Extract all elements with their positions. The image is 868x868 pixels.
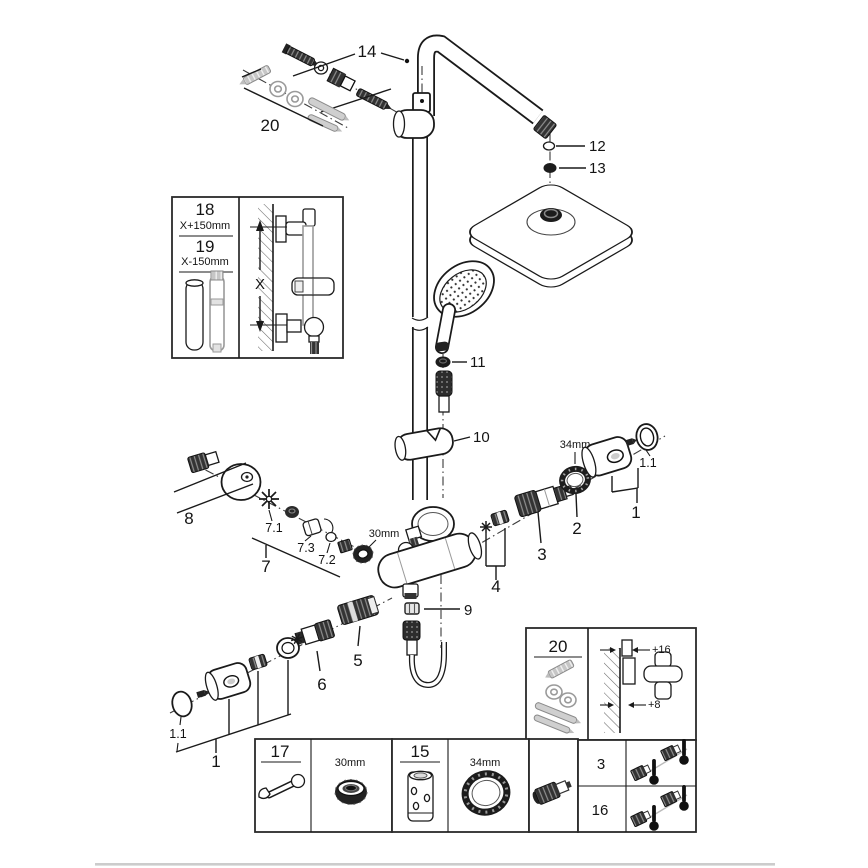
callout-1-1-left: 1.1 (169, 727, 186, 741)
callout-1-right: 1 (631, 503, 640, 522)
part-1-right-group: 1.1 1 (579, 422, 660, 522)
variant-16-label: 16 (592, 802, 609, 819)
part-8-group: 8 (174, 449, 261, 528)
sleeve-15-icon (408, 771, 433, 821)
oring-11 (436, 357, 451, 368)
nut-30mm (351, 543, 374, 565)
variants-table: 3 16 (578, 739, 696, 832)
mount-point-dot-2 (420, 99, 424, 103)
part-9-outlet: 9 (403, 602, 472, 685)
x-dim-label: X (255, 276, 265, 293)
callout-6: 6 (317, 675, 326, 694)
inset-mounting-box: 20 +16 +8 (526, 628, 696, 740)
callout-11: 11 (470, 354, 486, 371)
callout-9: 9 (464, 602, 472, 619)
callout-8: 8 (184, 509, 193, 528)
oring-13 (544, 163, 557, 173)
handle-cap (634, 422, 660, 452)
callout-2: 2 (572, 519, 581, 538)
inset-20-label: 20 (549, 637, 568, 656)
seal-disc (285, 506, 299, 518)
wall-union (394, 93, 435, 138)
rail-tube-18 (186, 281, 203, 350)
offset-16-label: +16 (652, 644, 671, 656)
handle-grip-left (203, 661, 253, 702)
hose-connector (436, 371, 452, 396)
inset-part-19: 19 (196, 237, 215, 256)
callout-7-1: 7.1 (265, 521, 282, 535)
exploded-parts-diagram: 14 20 12 13 (0, 0, 868, 868)
mount-point-dot (405, 59, 409, 63)
offset-8-label: +8 (648, 699, 661, 711)
hand-shower-head (423, 250, 505, 328)
small-ring-7-2 (326, 533, 336, 542)
tools-table: 17 30mm 15 34mm (255, 739, 578, 832)
callout-5: 5 (353, 651, 362, 670)
tool-15-label: 15 (411, 742, 430, 761)
callout-1-1-right: 1.1 (639, 456, 656, 470)
washer-12 (544, 142, 555, 150)
variant-3-label: 3 (597, 756, 605, 773)
nut-30mm-icon (335, 780, 367, 805)
callout-1-left: 1 (211, 752, 220, 771)
inset-slider (292, 278, 334, 295)
callout-4: 4 (491, 577, 500, 596)
rail-tube-19 (210, 276, 224, 351)
tool-34mm-label: 34mm (470, 757, 501, 769)
nut-size-label: 30mm (369, 528, 400, 540)
inset-part-19-dim: X-150mm (181, 256, 229, 268)
part-3-group: 3 (514, 480, 575, 564)
inset-part-18: 18 (196, 200, 215, 219)
inset-rail-length: 18 X+150mm 19 X-150mm (172, 197, 343, 358)
callout-3: 3 (537, 545, 546, 564)
tool-30mm-label: 30mm (335, 757, 366, 769)
callout-7: 7 (261, 557, 270, 576)
callout-7-2: 7.2 (318, 553, 335, 567)
hand-shower-group: 11 10 (393, 250, 505, 462)
callout-14: 14 (358, 42, 377, 61)
shower-arm-pipe (426, 44, 557, 139)
inset-part-18-dim: X+150mm (180, 220, 230, 232)
star-clip-7-1 (259, 489, 279, 509)
part-7-group: 30mm 7.1 7.3 7.2 7 (252, 489, 399, 577)
callout-20-top: 20 (261, 116, 280, 135)
sleeve-5 (337, 595, 379, 625)
callout-13: 13 (589, 160, 606, 177)
slider-holder-10 (393, 426, 455, 462)
callout-7-3: 7.3 (297, 541, 314, 555)
tool-17-label: 17 (271, 742, 290, 761)
callout-10: 10 (473, 429, 490, 446)
parts-diagram-page: 14 20 12 13 (0, 0, 868, 868)
footer-divider (95, 863, 775, 866)
callout-12: 12 (589, 138, 606, 155)
part-4-group: 4 (480, 510, 509, 596)
